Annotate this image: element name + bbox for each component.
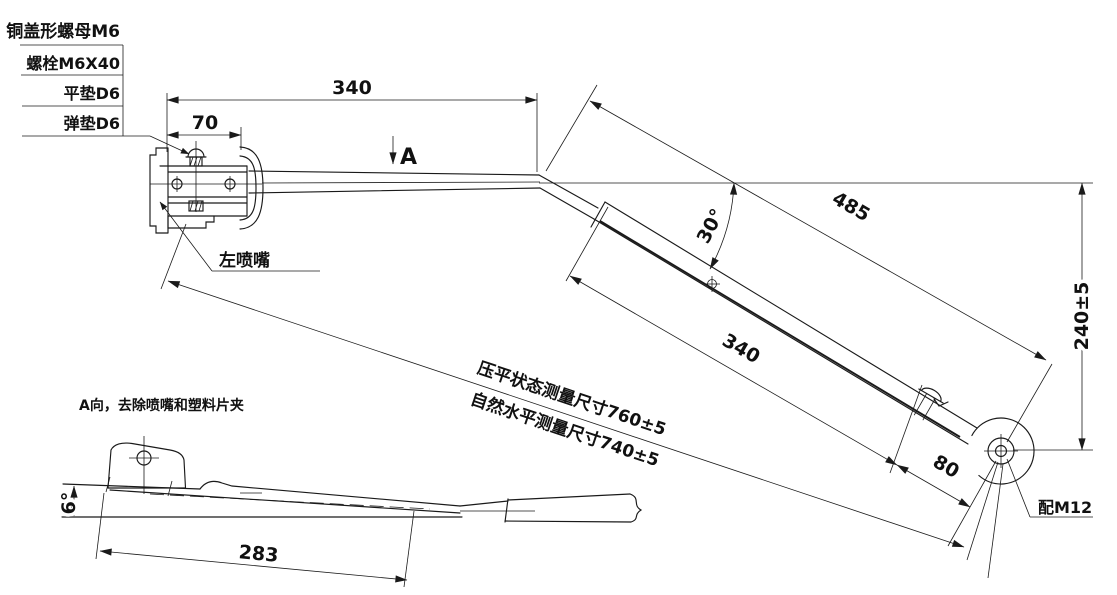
dim-485-value: 485 [828,187,873,226]
parts-list-item: 平垫D6 [64,84,120,103]
view-a-part [62,436,641,522]
dim-6deg-value: 6° [58,492,80,515]
dim-283-value: 283 [238,541,280,567]
view-a-arm-dashed-centerline [150,494,430,509]
fit-m12-leader [1007,459,1030,517]
left-nozzle-text: 左喷嘴 [219,250,270,271]
dim-30-value: 30° [693,205,729,247]
dim-70-value: 70 [192,112,218,134]
section-a-marker: A [393,136,417,170]
dim-240: 240±5 [1071,183,1093,450]
centerline-target-mark [704,276,720,292]
head-left-plate [150,148,168,233]
drawing-sheet: 铜盖形螺母M6 螺栓M6X40 平垫D6 弹垫D6 [0,0,1117,595]
dim-240-value: 240±5 [1071,282,1093,351]
dim-angle-30: 30° [693,183,734,292]
parts-list: 铜盖形螺母M6 螺栓M6X40 平垫D6 弹垫D6 [6,21,189,154]
arm-straight [249,171,540,193]
dim-overall-length: 压平状态测量尺寸760±5 自然水平测量尺寸740±5 [161,224,964,547]
dim-340-top-value: 340 [332,77,372,99]
engineering-drawing: 铜盖形螺母M6 螺栓M6X40 平垫D6 弹垫D6 [0,0,1117,595]
view-a-break-line [630,494,641,522]
fit-m12-text: 配M12 [1038,498,1092,517]
channel-top-edge [605,202,977,428]
dim-485: 485 [546,85,1052,442]
view-a-title: A向，去除喷嘴和塑料片夹 [79,397,244,414]
wiper-head [150,141,263,233]
view-a-arm-top-hump [200,481,460,506]
label-left-nozzle: 左喷嘴 [160,202,320,271]
left-nozzle-leader [160,202,212,271]
dim-70: 70 [167,112,241,150]
parts-list-item: 螺栓M6X40 [26,54,120,73]
channel-bottom-edge [594,219,968,444]
spring-loop-outer [240,147,263,229]
dim-340-top: 340 [167,77,537,172]
view-a-head-block [108,443,186,488]
parts-list-item: 弹垫D6 [64,114,120,133]
main-view: A [150,77,1093,578]
dim-340-lower: 340 [566,207,897,465]
dim-80-value: 80 [929,451,963,483]
head-bolt [186,141,206,212]
channel-inner-edge [600,221,960,437]
parts-list-item: 铜盖形螺母M6 [6,21,120,42]
label-fit-m12: 配M12 [1007,459,1093,517]
section-a-label: A [400,145,417,170]
dim-340-lower-value: 340 [718,329,763,368]
dim-6deg: 6° [58,486,80,516]
